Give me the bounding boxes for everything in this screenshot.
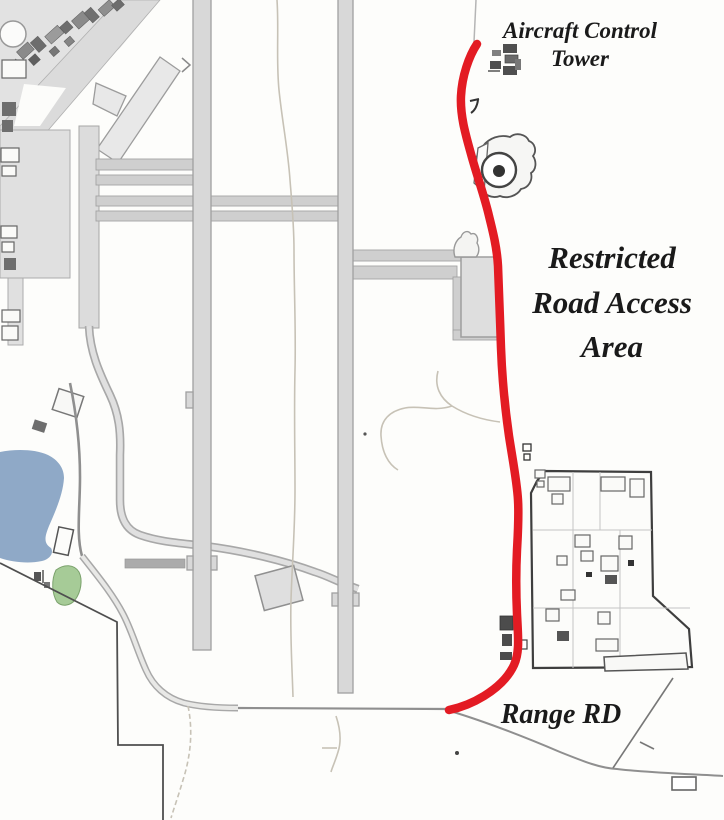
- road-segment: [125, 559, 185, 568]
- taxiway-band: [353, 250, 463, 261]
- taxiway-band: [96, 211, 338, 221]
- runway-pad: [187, 556, 193, 570]
- runway-pad: [186, 392, 193, 408]
- taxiway-band: [353, 266, 457, 279]
- map-canvas: Aircraft Control Tower Restricted Road A…: [0, 0, 724, 820]
- restricted-label-line2: Road Access: [531, 285, 692, 320]
- vertical-taxiway: [79, 126, 99, 328]
- restricted-label-line1: Restricted: [547, 240, 676, 275]
- tower-label-line1: Aircraft Control: [501, 18, 658, 43]
- range-road-label: Range RD: [500, 699, 622, 730]
- runway-pad: [332, 593, 338, 606]
- runway-pad: [353, 593, 359, 606]
- runway-pad: [211, 556, 217, 570]
- installation-map: Aircraft Control Tower Restricted Road A…: [0, 0, 724, 820]
- taxiway-band: [96, 159, 193, 170]
- west-runway: [193, 0, 211, 650]
- circular-pad: [0, 21, 26, 47]
- taxiway-band: [96, 175, 193, 185]
- outbuilding: [672, 777, 696, 790]
- east-facility-building: [461, 257, 498, 337]
- tank-center: [493, 165, 505, 177]
- map-background: [0, 0, 724, 820]
- range-road: [238, 708, 447, 709]
- taxiway-band: [453, 277, 461, 333]
- restricted-label-line3: Area: [579, 329, 643, 364]
- map-dot: [455, 751, 459, 755]
- taxiway-band: [96, 196, 338, 206]
- tower-label-line2: Tower: [551, 46, 610, 71]
- map-dot: [363, 432, 366, 435]
- east-runway: [338, 0, 353, 693]
